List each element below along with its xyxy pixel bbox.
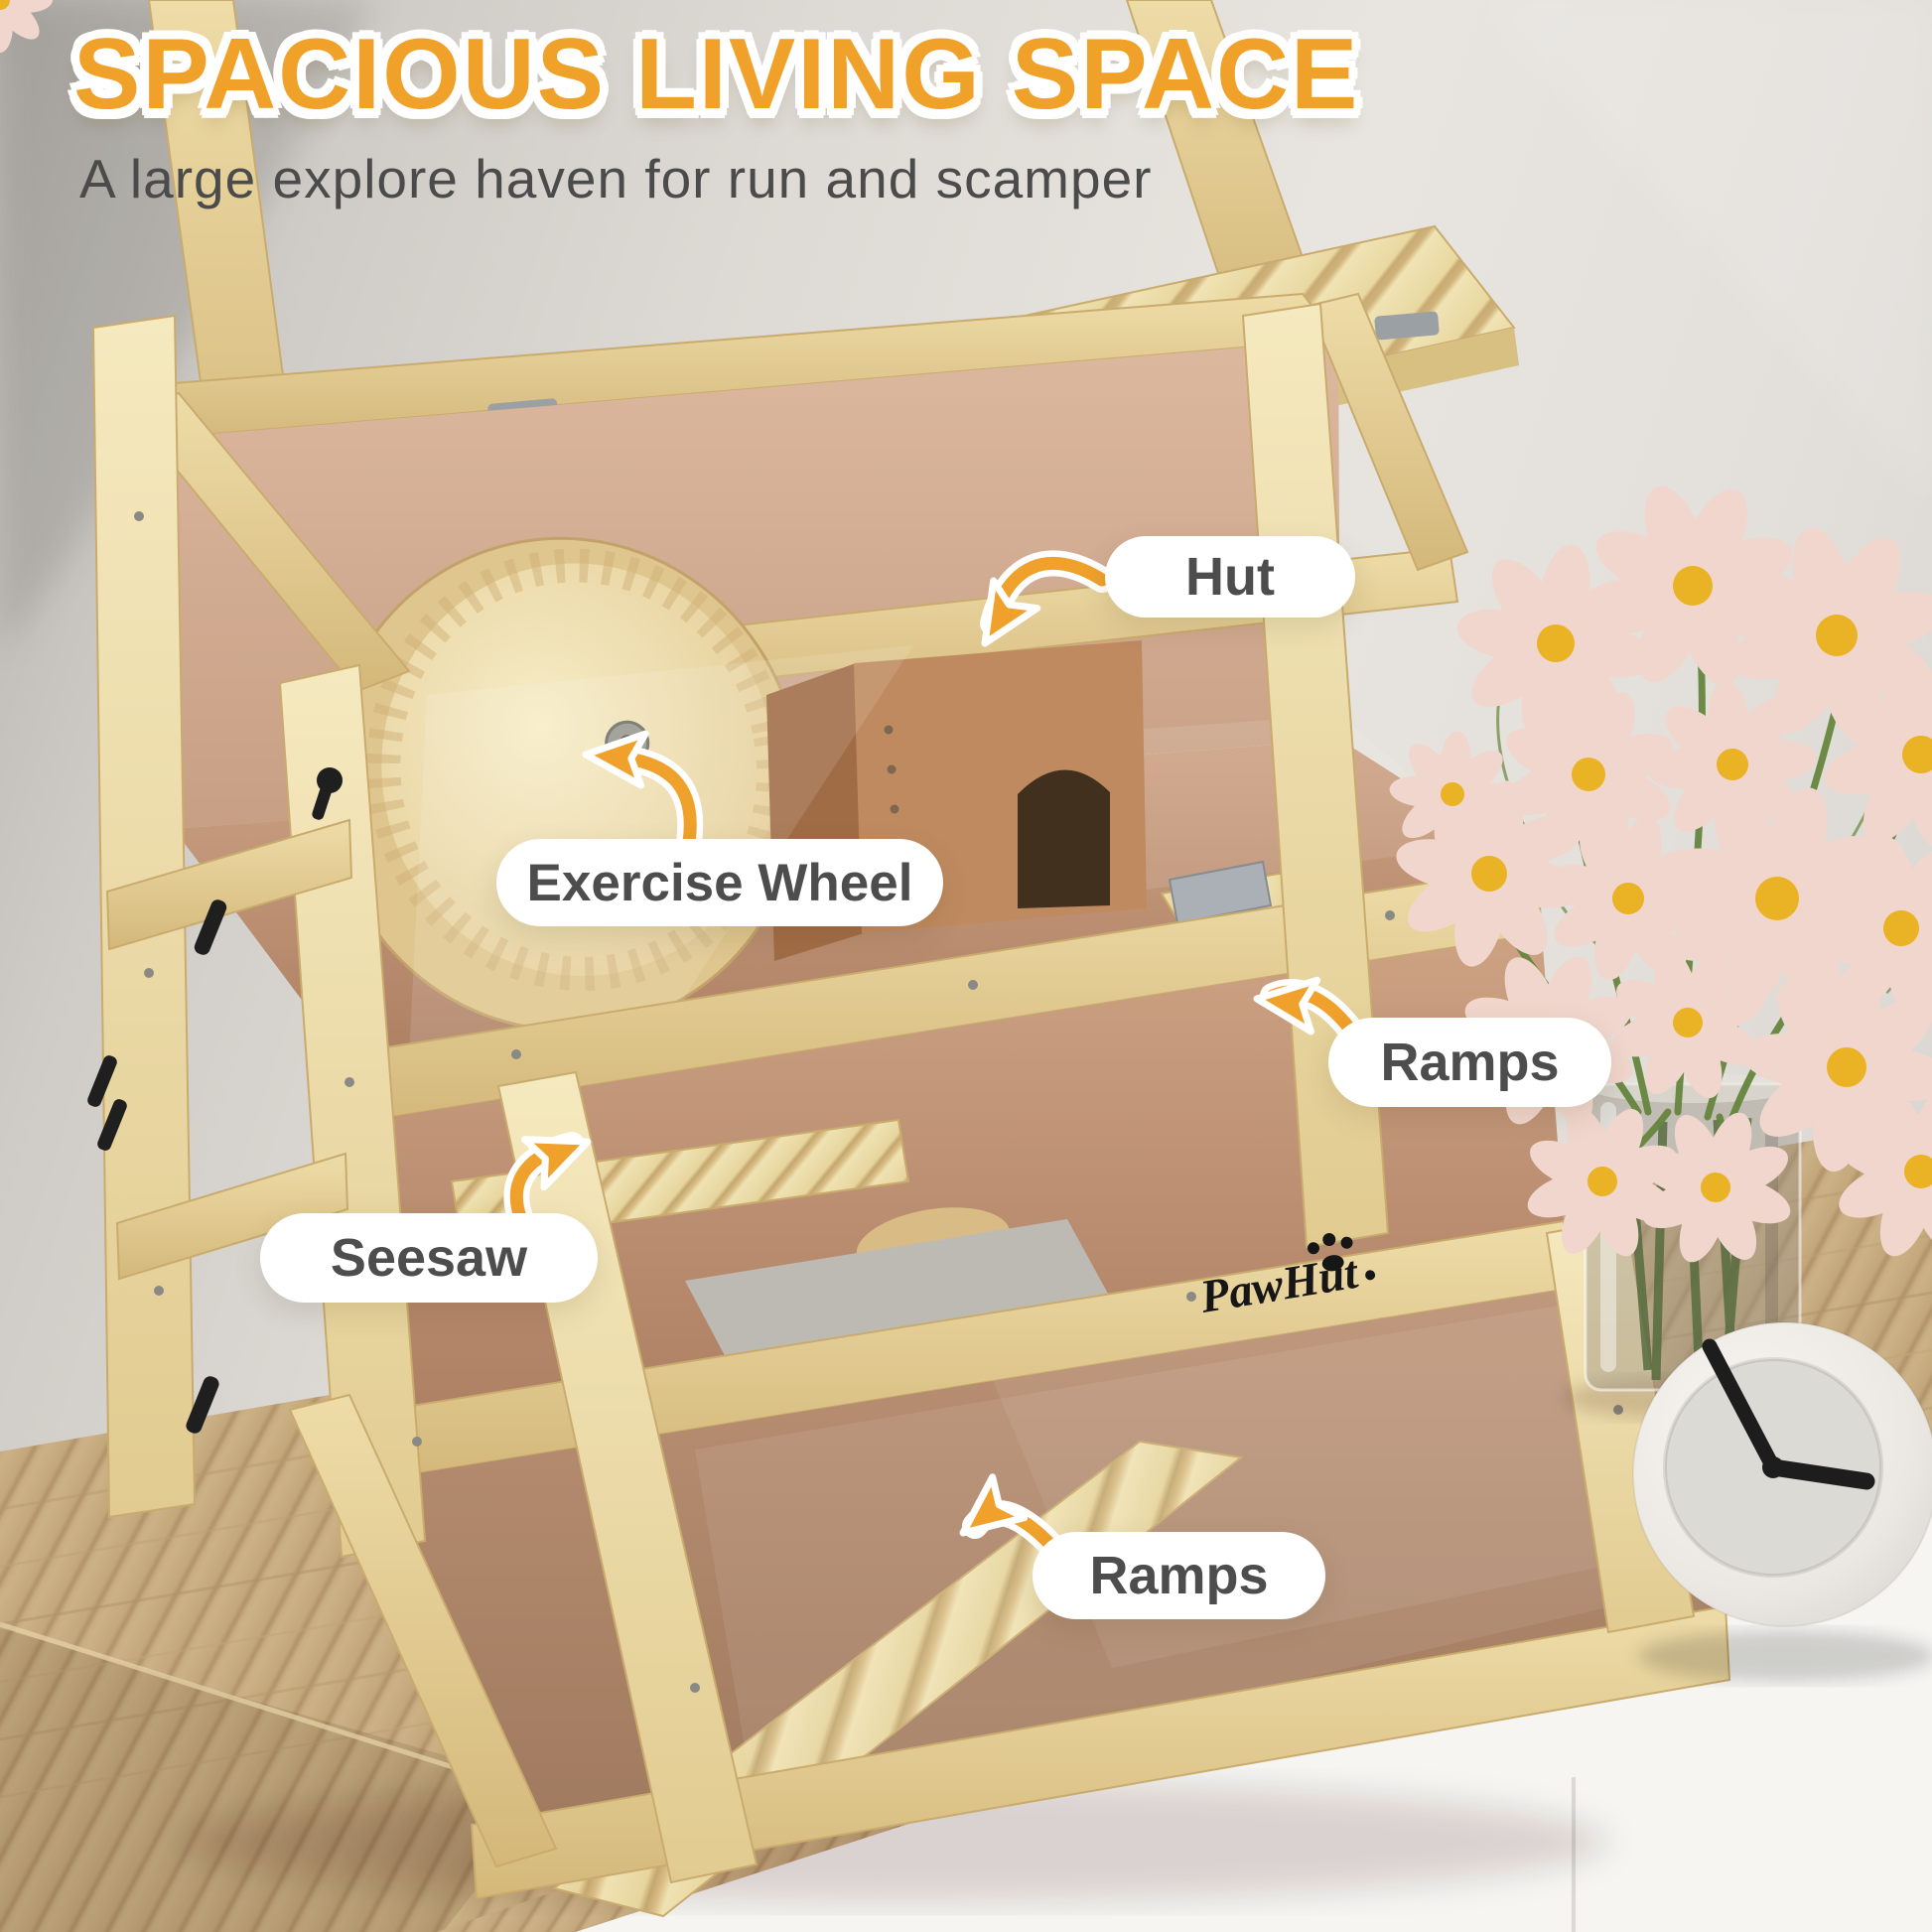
callout-exercise-wheel-label: Exercise Wheel <box>527 853 913 913</box>
callout-seesaw: Seesaw <box>260 1213 598 1303</box>
callout-ramps-lower: Ramps <box>1033 1532 1325 1619</box>
hut-door <box>1018 769 1110 908</box>
callout-ramps-upper-label: Ramps <box>1380 1032 1559 1093</box>
product-photo: PawHut <box>0 0 1932 1932</box>
page-title: SPACIOUS LIVING SPACE <box>73 18 1359 132</box>
callout-seesaw-label: Seesaw <box>331 1227 527 1289</box>
callout-hut: Hut <box>1105 536 1355 618</box>
callout-exercise-wheel: Exercise Wheel <box>496 839 943 926</box>
callout-ramps-upper: Ramps <box>1328 1018 1611 1107</box>
product-marketing-image: PawHut <box>0 0 1932 1932</box>
page-subtitle: A large explore haven for run and scampe… <box>79 147 1153 210</box>
callout-ramps-lower-label: Ramps <box>1089 1545 1268 1606</box>
callout-hut-label: Hut <box>1185 546 1275 608</box>
